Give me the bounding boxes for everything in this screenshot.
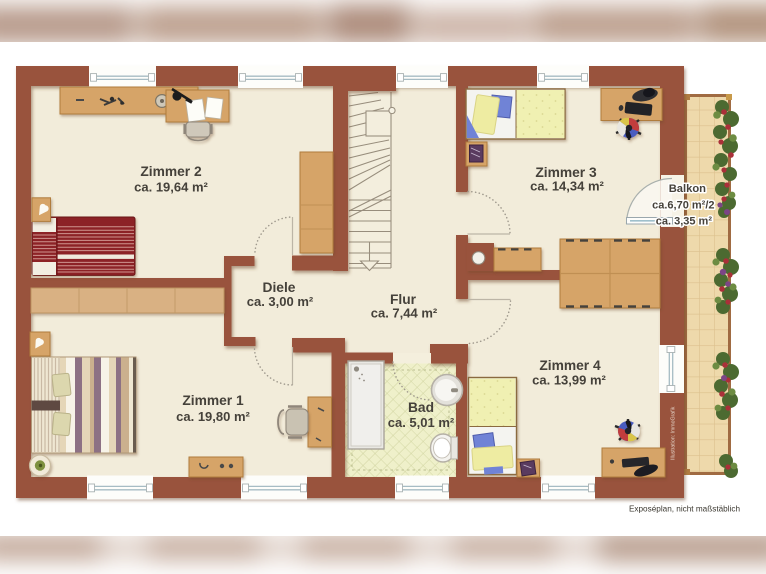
- svg-text:ca. 5,01 m²: ca. 5,01 m²: [388, 415, 455, 430]
- svg-text:ca. 7,44 m²: ca. 7,44 m²: [371, 306, 438, 321]
- svg-text:ca. 3,35 m²: ca. 3,35 m²: [656, 216, 713, 228]
- svg-text:Zimmer 2: Zimmer 2: [140, 164, 202, 179]
- svg-text:Zimmer 1: Zimmer 1: [182, 393, 244, 408]
- svg-text:ca. 19,80 m²: ca. 19,80 m²: [176, 409, 250, 424]
- svg-text:Bad: Bad: [408, 400, 434, 415]
- svg-text:Diele: Diele: [263, 280, 296, 295]
- svg-text:ca. 13,99 m²: ca. 13,99 m²: [532, 373, 606, 388]
- svg-text:ca. 3,00 m²: ca. 3,00 m²: [247, 294, 314, 309]
- svg-text:ca. 19,64 m²: ca. 19,64 m²: [134, 179, 208, 194]
- svg-text:ca.6,70 m²/2: ca.6,70 m²/2: [652, 200, 714, 212]
- svg-text:Zimmer 4: Zimmer 4: [539, 358, 601, 373]
- svg-text:Illustration: ImmoGrafik: Illustration: ImmoGrafik: [671, 406, 677, 460]
- svg-text:ca. 14,34 m²: ca. 14,34 m²: [530, 179, 604, 194]
- svg-text:Exposéplan, nicht maßstäblich: Exposéplan, nicht maßstäblich: [629, 505, 740, 514]
- svg-text:Balkon: Balkon: [669, 183, 706, 195]
